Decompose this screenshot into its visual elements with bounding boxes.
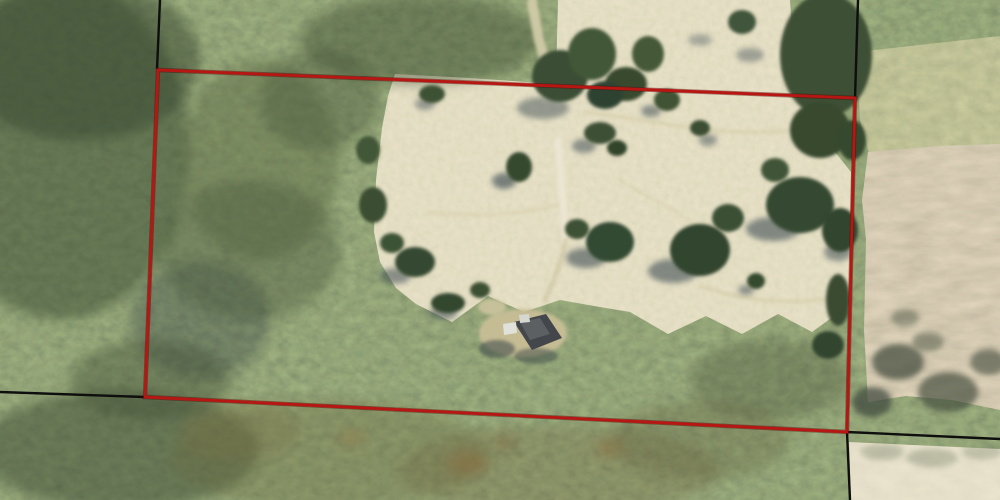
tree-shadow (891, 309, 919, 327)
tree-canopy (584, 122, 616, 144)
tree-canopy (728, 10, 756, 34)
tree-canopy (761, 158, 789, 182)
tree-canopy (607, 140, 627, 156)
tree-shadow (872, 344, 924, 380)
tree-canopy (356, 136, 380, 164)
tree-canopy (506, 152, 532, 182)
tree-shadow (918, 372, 978, 412)
canopy-patch (339, 430, 365, 446)
tree-canopy (359, 187, 387, 223)
canopy-patch (610, 400, 790, 480)
aerial-map-view[interactable] (0, 0, 1000, 500)
tree-shadow (688, 34, 712, 46)
house-shadow (479, 340, 515, 358)
canopy-patch (70, 340, 230, 420)
tree-shadow (736, 48, 764, 62)
tree-canopy (431, 293, 465, 313)
tree-canopy (747, 273, 765, 289)
driveway-pad (478, 299, 506, 315)
tree-canopy (419, 85, 445, 103)
tree-canopy (470, 282, 490, 298)
tree-canopy (812, 331, 844, 359)
tree-canopy (712, 204, 744, 232)
canopy-patch (595, 439, 625, 457)
tree-canopy (380, 233, 404, 253)
tree-canopy (690, 120, 710, 136)
tree-canopy (565, 219, 589, 239)
canopy-patch (160, 180, 340, 320)
tree-canopy (826, 274, 850, 326)
tree-canopy (670, 224, 730, 276)
tree-canopy (586, 222, 634, 262)
tree-shadow (852, 387, 892, 417)
tree-shadow (860, 444, 904, 460)
tree-canopy (632, 36, 664, 72)
outbuilding (503, 322, 517, 335)
tree-canopy (395, 247, 435, 277)
canopy-patch (448, 451, 488, 475)
outbuilding (519, 314, 530, 323)
tree-shadow (912, 332, 944, 352)
tree-canopy (587, 81, 623, 109)
aerial-imagery[interactable] (0, 0, 1000, 500)
tree-canopy (568, 28, 616, 80)
house-shadow (514, 348, 558, 364)
canopy-patch (493, 434, 517, 450)
tree-shadow (906, 449, 958, 467)
